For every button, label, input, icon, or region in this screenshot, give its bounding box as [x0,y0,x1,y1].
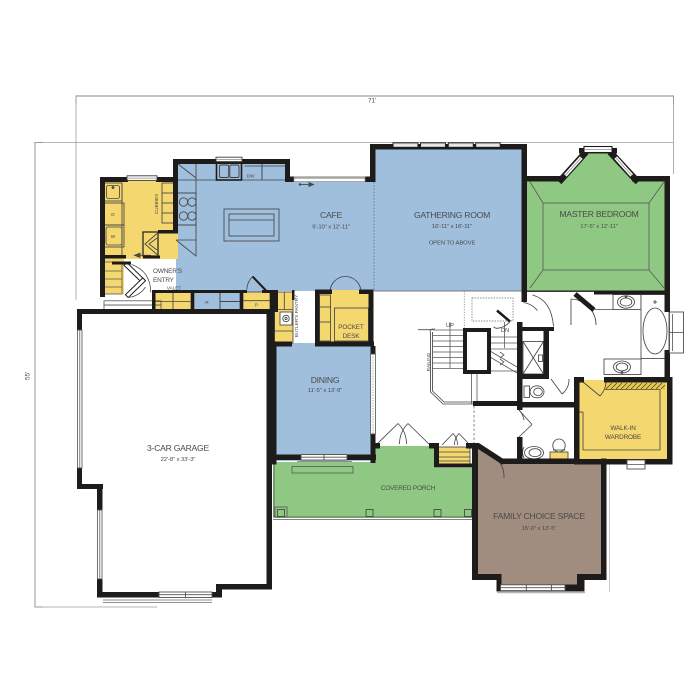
svg-text:POCKET: POCKET [338,324,364,331]
svg-text:55': 55' [25,372,32,380]
svg-text:RAILING: RAILING [426,352,431,371]
svg-text:COVERED PORCH: COVERED PORCH [381,485,436,492]
svg-text:WALK-IN: WALK-IN [610,425,636,432]
svg-text:WARDROBE: WARDROBE [605,434,641,441]
svg-text:BUTLER'S PANTRY: BUTLER'S PANTRY [294,294,299,337]
svg-text:W: W [111,234,116,239]
svg-text:GATHERING ROOM: GATHERING ROOM [414,210,490,220]
svg-text:DW: DW [247,173,255,178]
svg-text:DINING: DINING [311,375,340,385]
svg-text:FAMILY CHOICE SPACE: FAMILY CHOICE SPACE [493,511,585,521]
svg-text:DN: DN [501,328,509,334]
svg-text:3-CAR GARAGE: 3-CAR GARAGE [147,443,209,453]
svg-text:CUBBIES: CUBBIES [154,194,159,215]
svg-text:VALET: VALET [167,286,182,291]
svg-text:17'-5" x 12'-11": 17'-5" x 12'-11" [580,224,617,230]
svg-text:MASTER BEDROOM: MASTER BEDROOM [559,209,638,219]
svg-text:ENTRY: ENTRY [153,277,175,284]
svg-text:9'-10" x 12'-11": 9'-10" x 12'-11" [312,225,349,231]
svg-text:CAFE: CAFE [320,210,342,220]
svg-text:DESK: DESK [343,333,361,340]
svg-text:71': 71' [368,98,376,105]
svg-text:22'-8" x 33'-3": 22'-8" x 33'-3" [161,457,196,463]
svg-text:OPEN TO ABOVE: OPEN TO ABOVE [429,241,476,247]
svg-text:P: P [255,303,258,308]
svg-text:15'-0" x 13'-5": 15'-0" x 13'-5" [522,526,557,532]
svg-text:16'-11" x 16'-11": 16'-11" x 16'-11" [432,224,472,230]
svg-text:11'-5" x 13'-9": 11'-5" x 13'-9" [308,388,342,394]
svg-text:UP: UP [446,323,454,329]
svg-text:OWNER'S: OWNER'S [153,268,182,275]
